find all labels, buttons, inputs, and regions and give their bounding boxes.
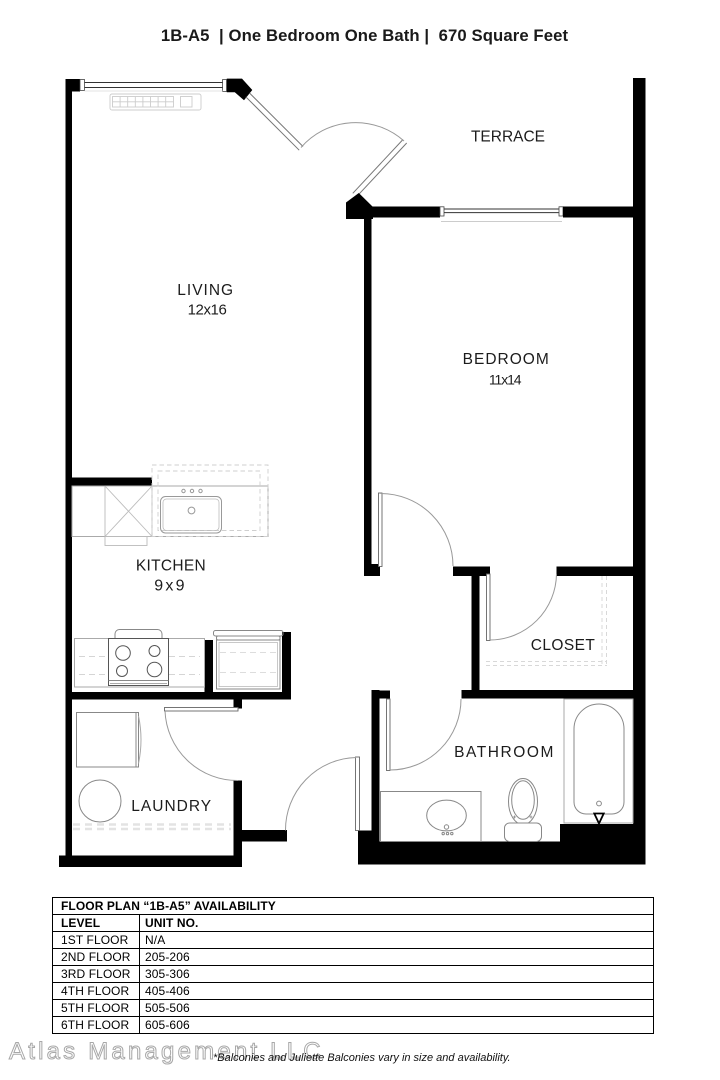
svg-text:BATHROOM: BATHROOM: [454, 744, 555, 761]
svg-text:KITCHEN: KITCHEN: [136, 558, 206, 575]
svg-text:9x9: 9x9: [154, 578, 186, 595]
svg-text:LIVING: LIVING: [177, 282, 234, 299]
svg-text:TERRACE: TERRACE: [471, 129, 545, 146]
svg-text:CLOSET: CLOSET: [531, 637, 596, 654]
svg-text:BEDROOM: BEDROOM: [463, 351, 550, 368]
svg-text:LAUNDRY: LAUNDRY: [131, 798, 212, 815]
svg-text:12x16: 12x16: [188, 302, 227, 319]
svg-text:11x14: 11x14: [489, 372, 522, 388]
